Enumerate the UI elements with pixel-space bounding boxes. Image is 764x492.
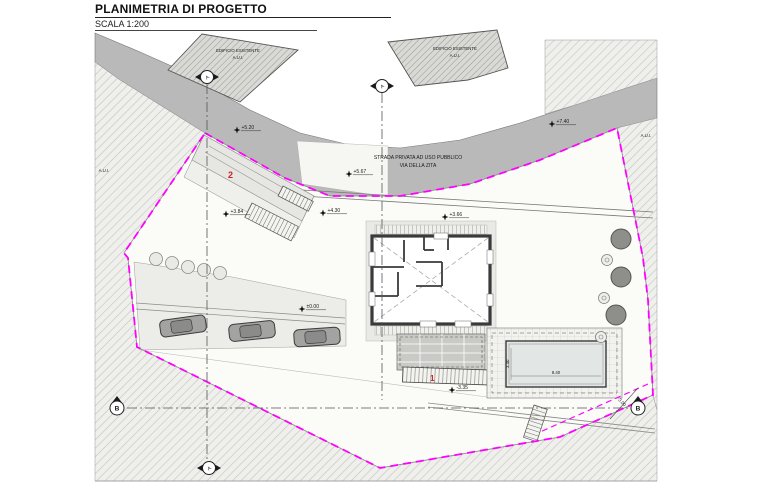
roof-eave-band-top <box>375 225 487 234</box>
page-title: PLANIMETRIA DI PROGETTO <box>95 2 395 16</box>
ornamental-shrub-symbol <box>602 255 613 266</box>
pool-length-dim: 8.40 <box>552 370 561 375</box>
existing-building-left-sublabel: A.U.I. <box>233 55 244 60</box>
section-marker-a-top-right: A <box>370 80 394 93</box>
svg-text:+4.30: +4.30 <box>328 208 341 214</box>
lower-terrace-slab <box>397 334 485 370</box>
pool-width-dim: 3.40 <box>505 359 510 368</box>
shrub-symbol <box>198 264 211 277</box>
svg-text:-3.35: -3.35 <box>457 385 469 391</box>
existing-building-left-label: EDIFICIO ESISTENTE <box>216 48 260 53</box>
existing-building-right: EDIFICIO ESISTENTE A.U.I. <box>388 30 508 86</box>
title-block: PLANIMETRIA DI PROGETTO SCALA 1:200 <box>95 2 395 31</box>
drawing-sheet: EDIFICIO ESISTENTE A.U.I. EDIFICIO ESIST… <box>0 0 764 492</box>
svg-text:+5.67: +5.67 <box>354 169 367 175</box>
ramp-number-label: 2 <box>228 170 233 180</box>
shrub-symbol <box>150 253 163 266</box>
car-symbol <box>293 327 340 347</box>
shrub-symbol <box>166 257 179 270</box>
svg-text:VIA DELLA ZITA: VIA DELLA ZITA <box>400 163 437 169</box>
shrub-symbol <box>182 261 195 274</box>
existing-building-right-label: EDIFICIO ESISTENTE <box>433 46 477 51</box>
stair-number-label: 1 <box>430 374 435 383</box>
pool <box>506 341 606 387</box>
main-building-plan <box>366 221 496 341</box>
parcel-label-left: A.U.I. <box>99 168 110 173</box>
svg-text:+3.66: +3.66 <box>450 212 463 218</box>
svg-text:±0.00: ±0.00 <box>307 304 320 310</box>
svg-text:STRADA PRIVATA AD USO PUBBLICO: STRADA PRIVATA AD USO PUBBLICO <box>374 155 462 161</box>
site-plan-drawing: EDIFICIO ESISTENTE A.U.I. EDIFICIO ESIST… <box>0 0 764 492</box>
existing-building-right-sublabel: A.U.I. <box>450 53 461 58</box>
shrub-symbol <box>214 267 227 280</box>
parcel-label-right: A.U.I. <box>641 133 652 138</box>
tree-canopy-symbol <box>606 305 626 325</box>
svg-text:+5.20: +5.20 <box>242 125 255 131</box>
svg-text:+7.40: +7.40 <box>557 119 570 125</box>
scale-rule <box>95 30 317 31</box>
svg-text:B: B <box>115 405 120 412</box>
ornamental-shrub-symbol <box>596 332 607 343</box>
tree-canopy-symbol <box>611 229 631 249</box>
svg-text:+3.84: +3.84 <box>231 209 244 215</box>
svg-text:B: B <box>636 405 641 412</box>
tree-canopy-symbol <box>611 267 631 287</box>
scale-label: SCALA 1:200 <box>95 19 395 29</box>
title-rule <box>95 17 391 18</box>
ornamental-shrub-symbol <box>599 293 610 304</box>
